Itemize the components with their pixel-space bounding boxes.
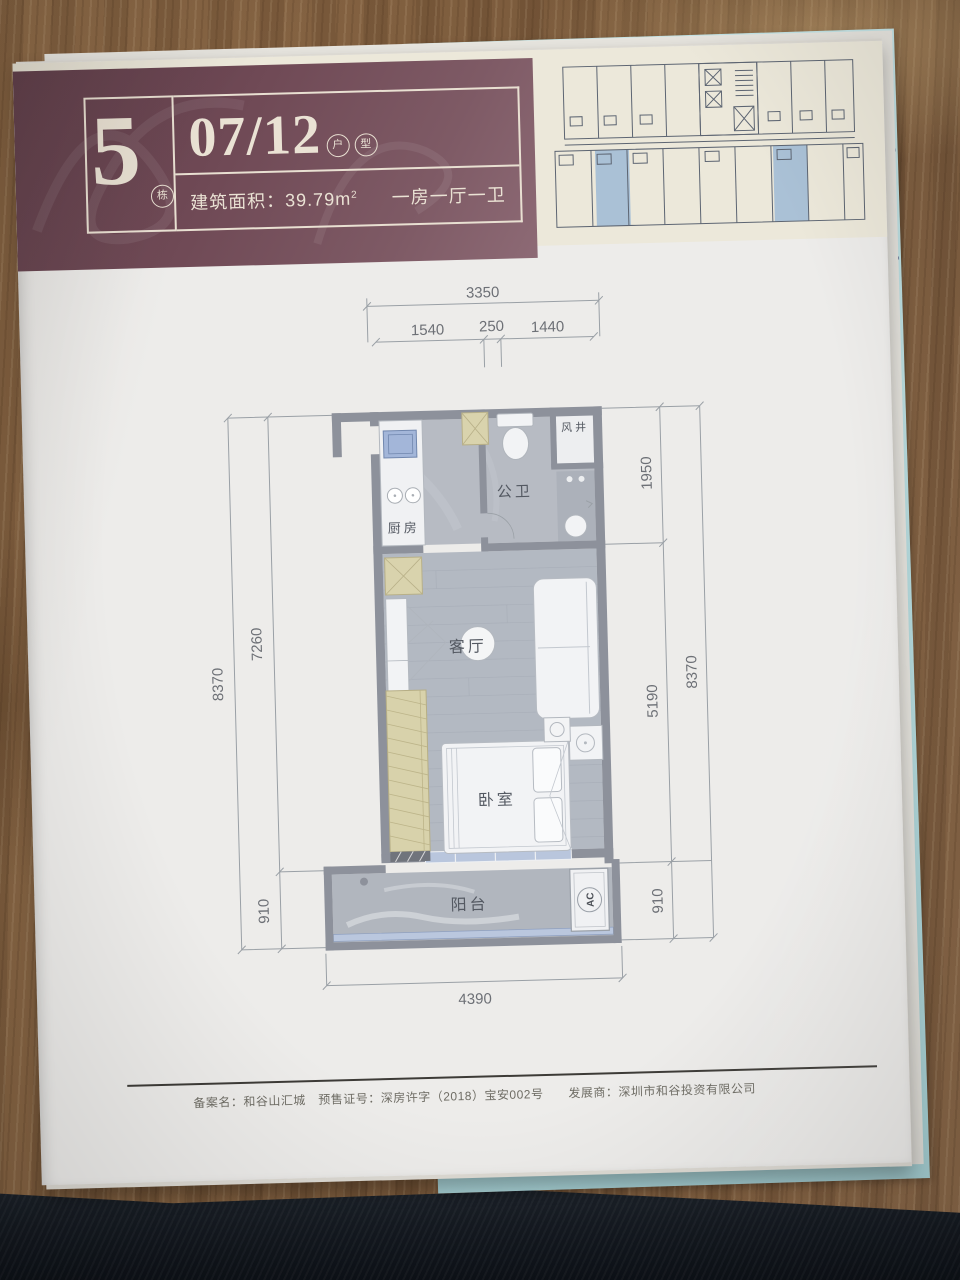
unit-char-2: 型 (354, 133, 378, 157)
dim-right-inner-top: 1950 (638, 456, 656, 490)
room-label-shaft: 风井 (561, 420, 589, 435)
key-plan (542, 43, 877, 242)
room-label-bathroom: 公卫 (497, 483, 533, 501)
dim-top-total: 3350 (466, 284, 500, 302)
unit-info-box: 07/12 户 型 建筑面积：39.79m2 一房一厅一卫 (173, 86, 522, 231)
dim-top-seg2: 250 (479, 318, 504, 336)
wash-basin (564, 515, 587, 538)
room-label-living: 客厅 (449, 637, 487, 656)
brochure-page: 5 栋 07/12 户 型 建筑面积：39.79m2 一房一厅一卫 (12, 41, 911, 1185)
dim-left-inner-main: 7260 (248, 627, 266, 661)
nightstand (544, 717, 571, 742)
building-unit-glyph: 栋 (151, 184, 175, 208)
dim-right-inner-mid: 5190 (644, 684, 662, 718)
layout-text: 一房一厅一卫 (391, 181, 506, 210)
pillow (533, 747, 562, 792)
building-number-box: 5 栋 (83, 95, 177, 233)
floor-plan: 3350 1540 250 1440 8370 7260 910 1950 51… (168, 275, 747, 1031)
area-row: 建筑面积：39.79m2 一房一厅一卫 (175, 166, 520, 229)
building-header-block: 5 栋 07/12 户 型 建筑面积：39.79m2 一房一厅一卫 (13, 58, 538, 272)
room-label-kitchen: 厨房 (388, 520, 420, 536)
unit-badge: 5 栋 07/12 户 型 建筑面积：39.79m2 一房一厅一卫 (83, 86, 522, 233)
area-exponent: 2 (351, 190, 358, 201)
hall-cabinet (462, 412, 489, 445)
footer-disclaimer: 备案名：和谷山汇城 预售证号：深房许字（2018）宝安002号 发展商：深圳市和… (40, 1075, 910, 1115)
unit-code: 07/12 (188, 100, 322, 173)
unit-code-row: 07/12 户 型 (173, 88, 519, 175)
toilet (502, 427, 529, 460)
building-number: 5 (89, 82, 143, 219)
dim-top-seg3: 1440 (531, 318, 565, 336)
dim-bottom-total: 4390 (458, 990, 492, 1008)
ac-label: AC (585, 892, 596, 907)
room-label-bedroom: 卧室 (478, 791, 516, 810)
key-plan-highlight-unit-07 (595, 149, 631, 226)
dim-top-seg1: 1540 (411, 321, 445, 339)
unit-char-1: 户 (326, 134, 350, 158)
dim-right-inner-bottom: 910 (649, 888, 667, 913)
dim-right-outer: 8370 (683, 655, 701, 689)
area-text: 建筑面积：39.79m2 (190, 185, 358, 215)
dim-left-outer: 8370 (209, 667, 227, 701)
room-label-balcony: 阳台 (450, 895, 488, 914)
pillow (534, 797, 563, 842)
dim-left-inner-balcony: 910 (255, 899, 273, 924)
